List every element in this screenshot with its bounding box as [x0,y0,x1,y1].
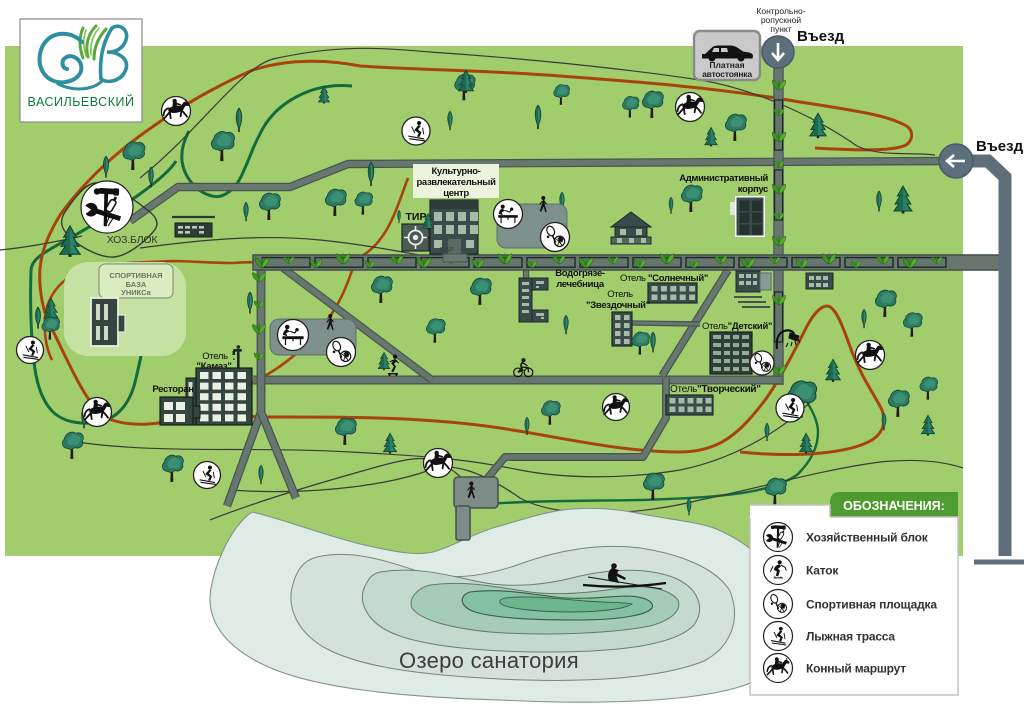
svg-text:автостоянка: автостоянка [702,69,752,79]
svg-text:Ресторан: Ресторан [152,384,194,395]
svg-text:Отель "Солнечный": Отель "Солнечный" [620,273,708,284]
svg-text:Административный: Административный [679,173,768,184]
svg-text:ОБОЗНАЧЕНИЯ:: ОБОЗНАЧЕНИЯ: [843,499,945,513]
svg-text:центр: центр [443,188,469,199]
svg-text:развлекательный: развлекательный [416,177,496,188]
svg-text:Отель"Детский": Отель"Детский" [702,321,772,332]
svg-text:пункт: пункт [770,24,791,34]
svg-text:"Звездочный": "Звездочный" [586,300,650,311]
svg-text:ХОЗ.БЛОК: ХОЗ.БЛОК [107,234,159,246]
svg-text:Хозяйственный блок: Хозяйственный блок [806,531,929,545]
svg-text:Конный маршрут: Конный маршрут [806,662,906,676]
svg-text:Озеро санатория: Озеро санатория [399,648,579,673]
svg-text:Въезд: Въезд [797,28,845,45]
svg-text:ВАСИЛЬЕВСКИЙ: ВАСИЛЬЕВСКИЙ [28,94,135,109]
svg-text:Водогрязе-: Водогрязе- [555,268,605,279]
svg-text:СПОРТИВНАЯ: СПОРТИВНАЯ [109,271,162,280]
svg-text:Отель"Творческий": Отель"Творческий" [670,384,761,395]
svg-text:БАР: БАР [440,247,454,254]
svg-text:корпус: корпус [738,184,768,195]
svg-text:Спортивная площадка: Спортивная площадка [806,598,937,612]
svg-text:Въезд: Въезд [976,138,1024,155]
svg-text:Культурно-: Культурно- [431,166,480,177]
svg-text:лечебница: лечебница [556,279,605,290]
svg-text:ТИР: ТИР [406,211,427,223]
svg-text:Лыжная трасса: Лыжная трасса [806,630,895,644]
svg-text:УНИКСа: УНИКСа [121,288,151,297]
svg-text:Отель: Отель [607,289,633,300]
svg-text:Каток: Каток [806,564,839,578]
